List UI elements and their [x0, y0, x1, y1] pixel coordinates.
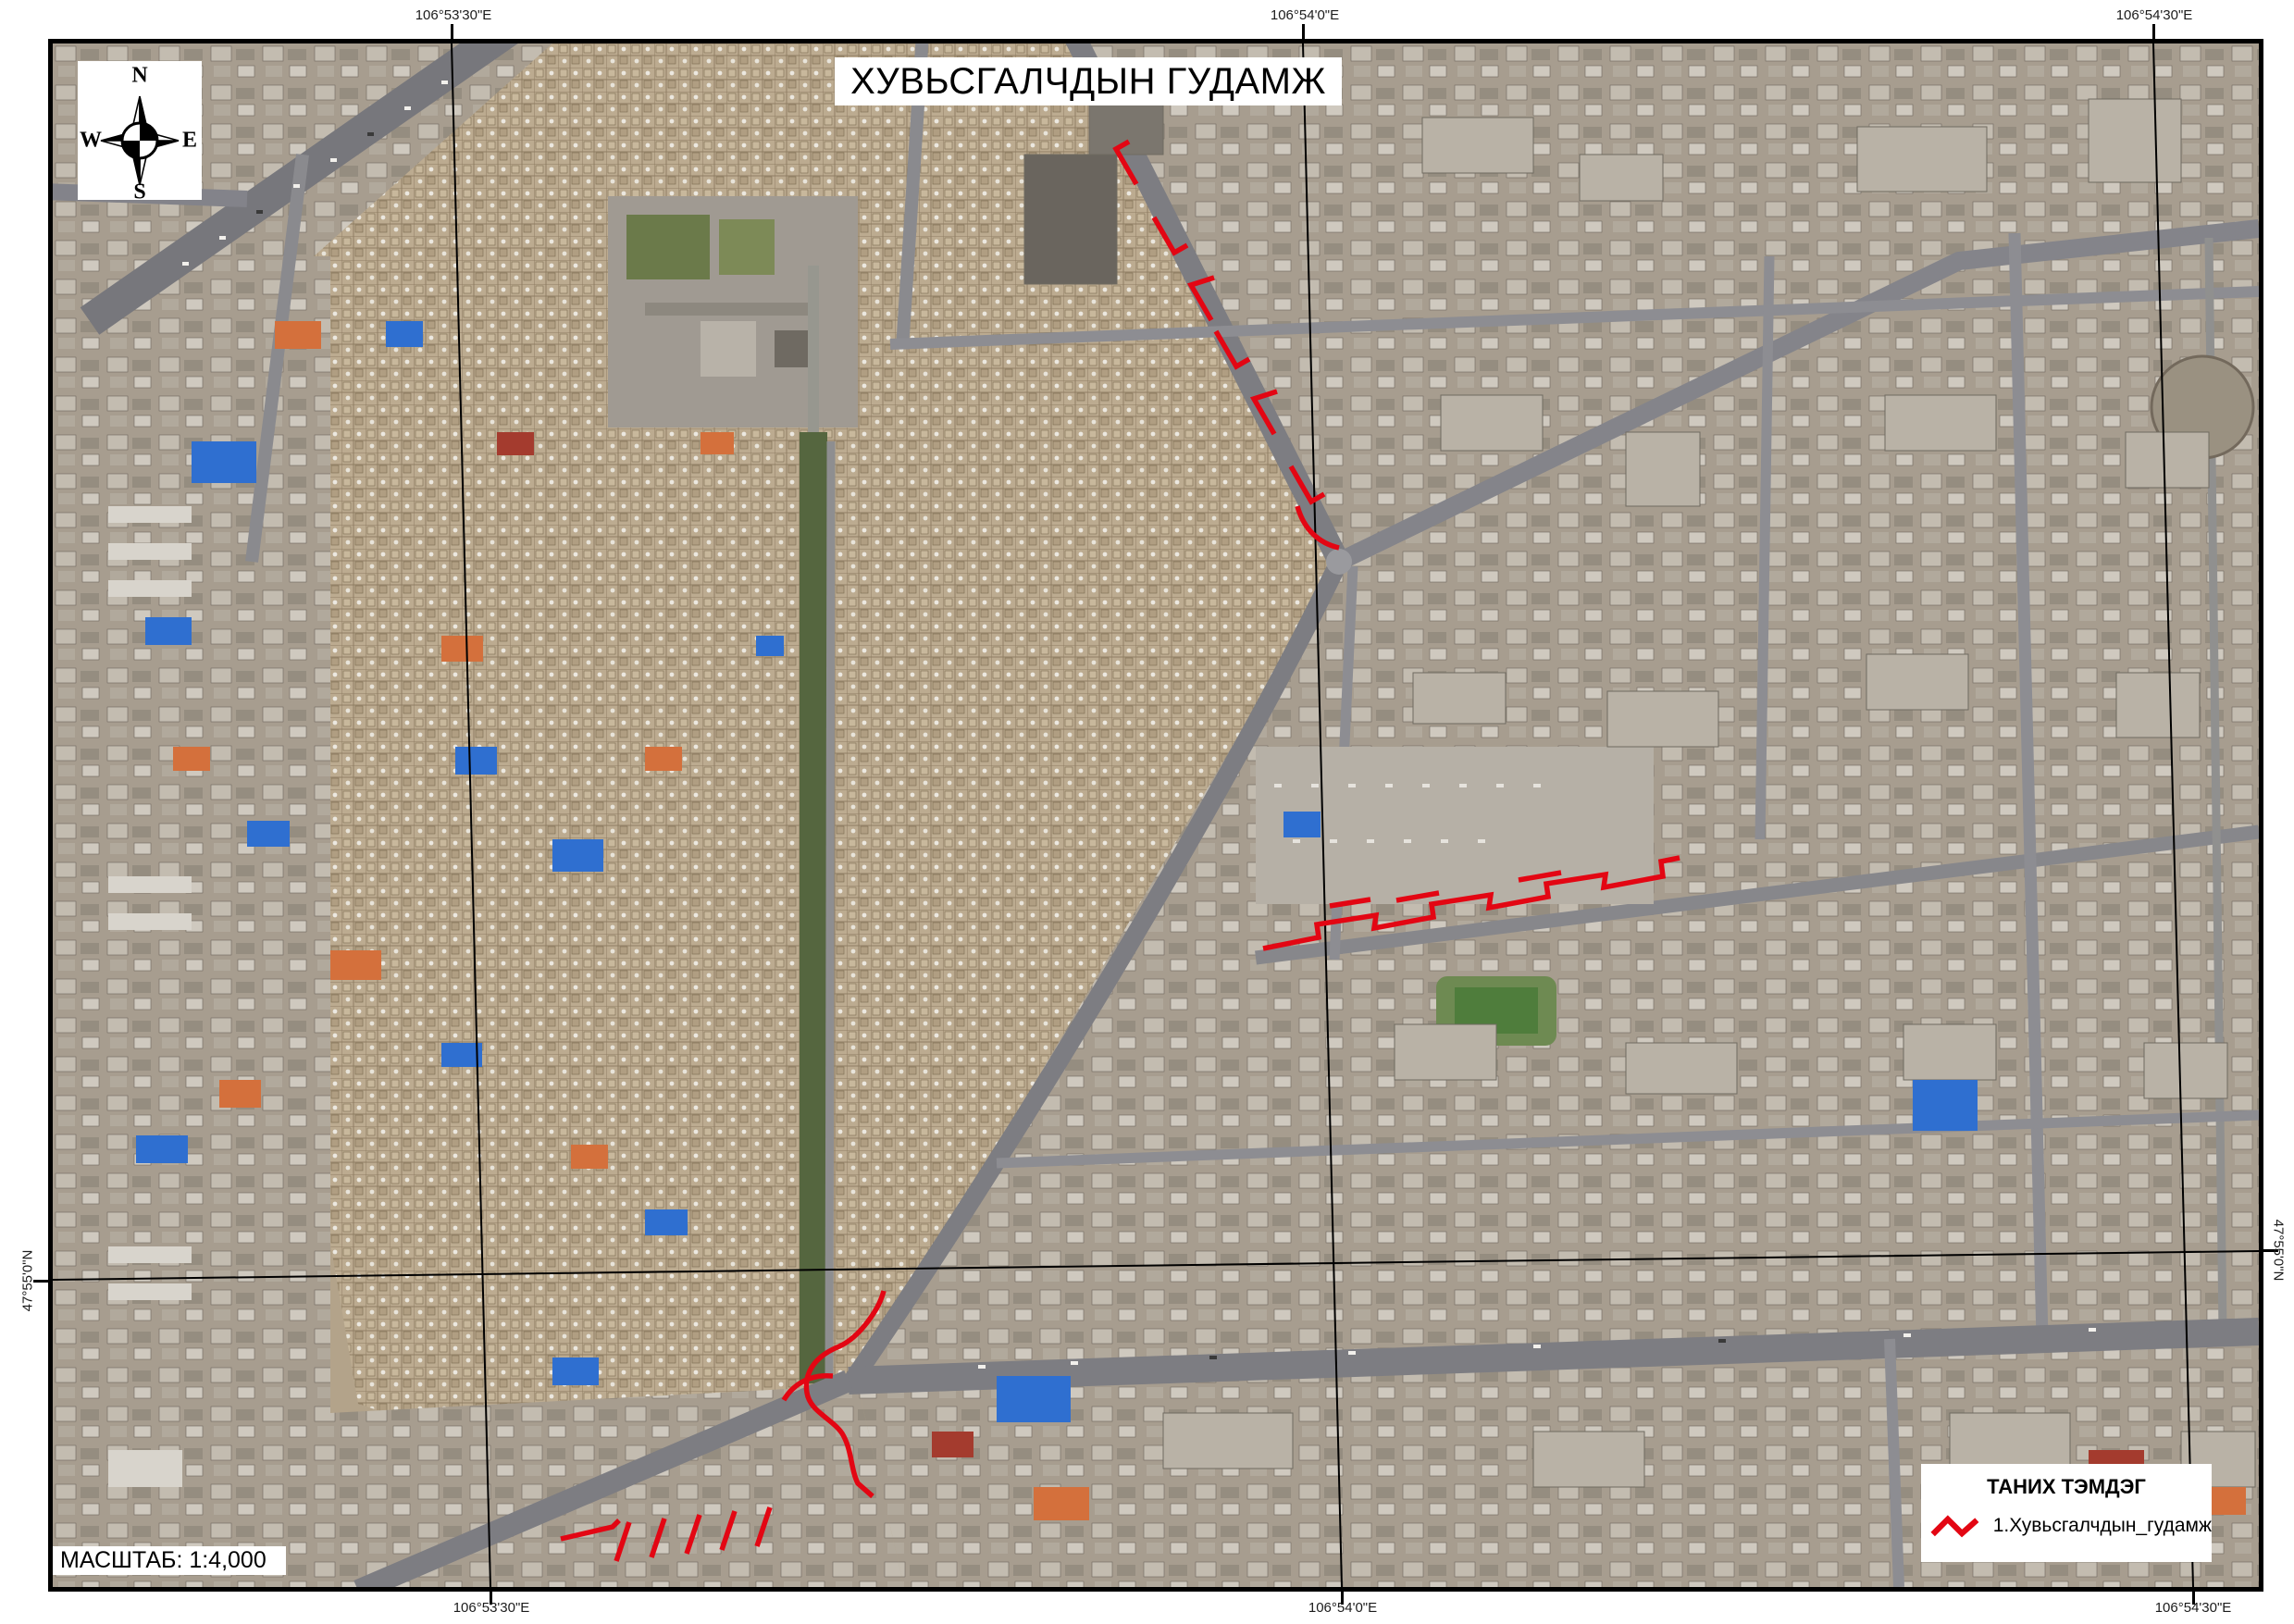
legend-title: ТАНИХ ТЭМДЭГ [1921, 1475, 2212, 1499]
compass-n-label: N [131, 64, 147, 89]
coord-label-top-1: 106°53'30"E [415, 7, 492, 23]
satellite-imagery [53, 43, 2259, 1587]
compass-w-label: W [80, 129, 102, 154]
graticule-tick [1302, 24, 1305, 39]
compass-rose: N W E S [78, 61, 202, 200]
legend: ТАНИХ ТЭМДЭГ 1.Хувьсгалчдын_гудамж [1921, 1464, 2212, 1562]
coord-label-right: 47°55'0"N [2271, 1220, 2287, 1282]
coord-label-top-2: 106°54'0"E [1271, 7, 1339, 23]
coord-label-left: 47°55'0"N [20, 1250, 36, 1312]
compass-s-label: S [133, 180, 145, 205]
legend-item-label: 1.Хувьсгалчдын_гудамж [1993, 1515, 2212, 1537]
coord-label-top-3: 106°54'30"E [2116, 7, 2193, 23]
graticule-tick [451, 24, 453, 39]
graticule-tick [2152, 24, 2155, 39]
map-title: ХУВЬСГАЛЧДЫН ГУДАМЖ [835, 57, 1342, 105]
compass-e-label: E [182, 129, 197, 154]
route-line-icon [1930, 1512, 1982, 1540]
coord-label-bottom-1: 106°53'30"E [453, 1600, 530, 1616]
coord-label-bottom-2: 106°54'0"E [1308, 1600, 1377, 1616]
map-document: ХУВЬСГАЛЧДЫН ГУДАМЖ N W E S МАСШТАБ: 1:4… [0, 0, 2294, 1624]
legend-item: 1.Хувьсгалчдын_гудамж [1930, 1512, 2212, 1540]
scale-text: МАСШТАБ: 1:4,000 [53, 1546, 286, 1575]
map-canvas [48, 39, 2263, 1592]
coord-label-bottom-3: 106°54'30"E [2155, 1600, 2232, 1616]
